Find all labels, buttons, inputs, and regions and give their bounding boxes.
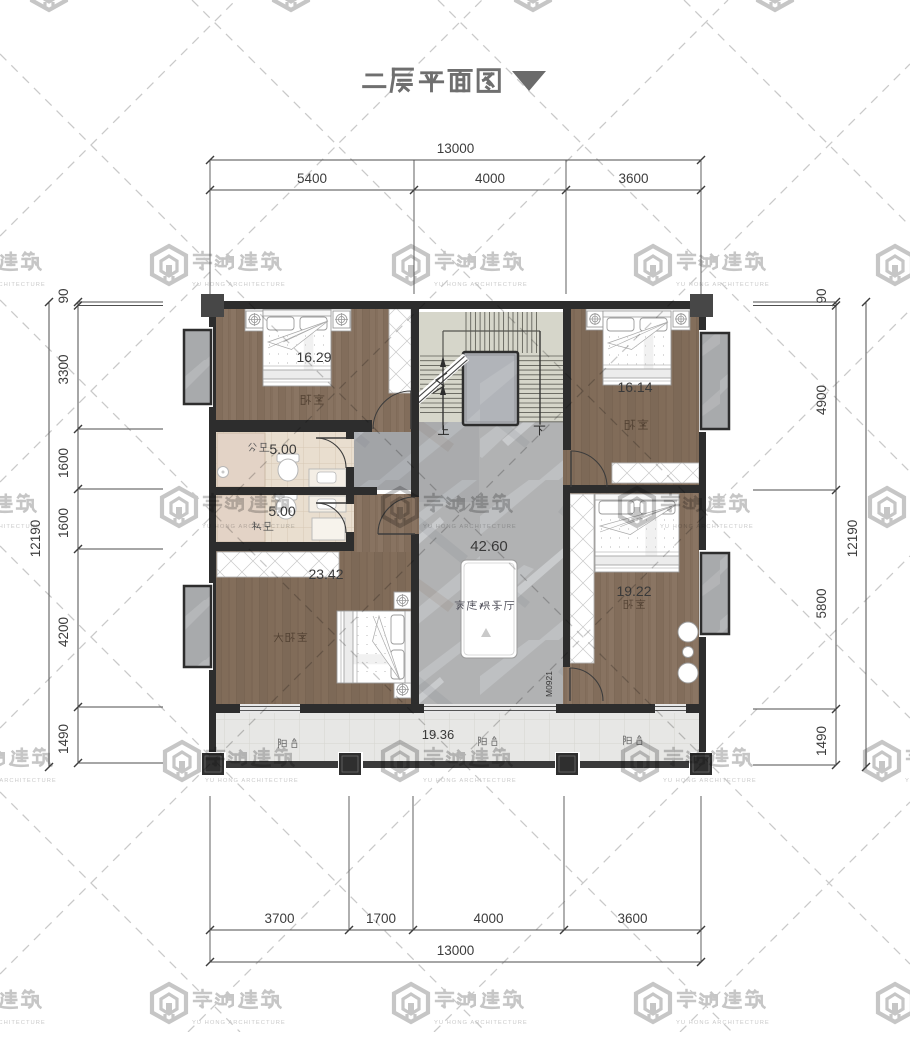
svg-text:1600: 1600 xyxy=(56,448,71,478)
svg-text:3600: 3600 xyxy=(617,911,647,926)
svg-text:1600: 1600 xyxy=(56,508,71,538)
svg-text:3700: 3700 xyxy=(264,911,294,926)
svg-text:42.60: 42.60 xyxy=(470,538,508,555)
svg-text:12190: 12190 xyxy=(845,520,860,558)
svg-text:3300: 3300 xyxy=(56,354,71,384)
svg-text:13000: 13000 xyxy=(437,141,475,156)
svg-text:13000: 13000 xyxy=(437,943,475,958)
svg-text:4200: 4200 xyxy=(56,617,71,647)
svg-text:19.36: 19.36 xyxy=(422,727,455,742)
svg-text:5400: 5400 xyxy=(297,171,327,186)
svg-text:90: 90 xyxy=(814,288,829,303)
svg-text:5800: 5800 xyxy=(814,588,829,618)
svg-text:90: 90 xyxy=(56,288,71,303)
svg-text:4000: 4000 xyxy=(473,911,503,926)
svg-text:3600: 3600 xyxy=(618,171,648,186)
svg-text:23.42: 23.42 xyxy=(308,566,343,582)
svg-text:4900: 4900 xyxy=(814,385,829,415)
svg-text:12190: 12190 xyxy=(28,520,43,558)
svg-text:4000: 4000 xyxy=(475,171,505,186)
svg-text:1490: 1490 xyxy=(56,724,71,754)
svg-text:1490: 1490 xyxy=(814,726,829,756)
svg-text:16.14: 16.14 xyxy=(617,379,652,395)
svg-text:M0921: M0921 xyxy=(544,671,554,697)
svg-text:16.29: 16.29 xyxy=(296,349,331,365)
svg-text:1700: 1700 xyxy=(366,911,396,926)
